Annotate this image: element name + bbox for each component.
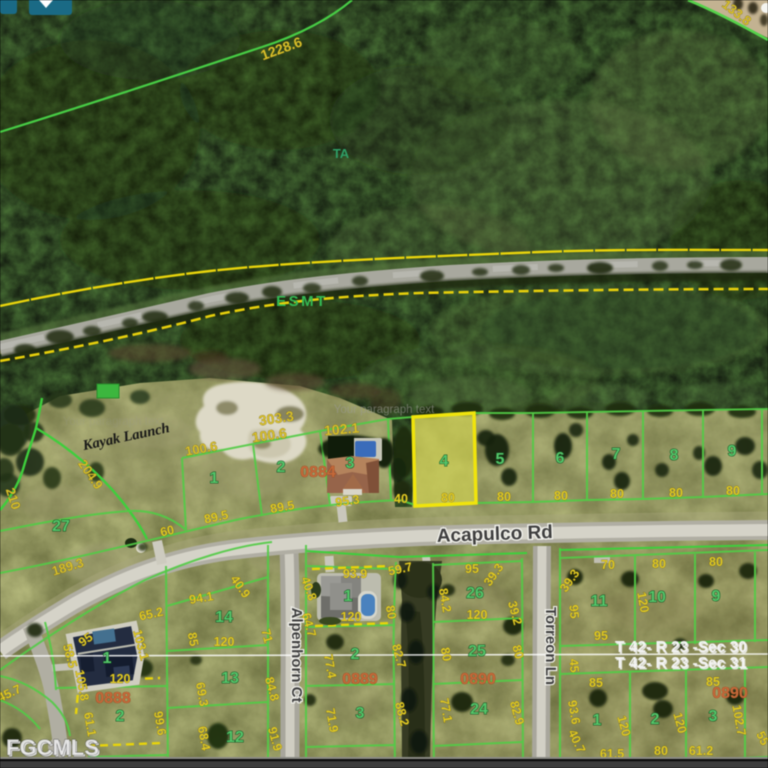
svg-text:10: 10	[648, 589, 666, 606]
svg-text:93.9: 93.9	[343, 567, 367, 581]
svg-text:8: 8	[670, 447, 679, 464]
svg-text:5: 5	[496, 451, 505, 468]
svg-text:9: 9	[712, 588, 721, 605]
svg-text:2: 2	[651, 711, 660, 728]
svg-text:102.1: 102.1	[323, 420, 360, 439]
svg-text:14: 14	[215, 609, 233, 626]
svg-text:80: 80	[441, 491, 455, 505]
svg-text:80: 80	[438, 646, 454, 662]
svg-text:1: 1	[344, 588, 353, 605]
svg-text:1: 1	[593, 712, 602, 729]
svg-text:120: 120	[214, 635, 235, 649]
svg-text:85: 85	[185, 631, 201, 647]
svg-text:3: 3	[709, 708, 718, 725]
svg-text:0890: 0890	[460, 671, 496, 688]
svg-text:120: 120	[467, 608, 488, 622]
svg-text:40: 40	[394, 492, 408, 506]
svg-text:Torreon Ln: Torreon Ln	[542, 607, 559, 685]
svg-text:25: 25	[468, 643, 486, 660]
svg-text:T 42- R 23 -Sec 30: T 42- R 23 -Sec 30	[615, 639, 747, 656]
svg-text:Your paragraph text: Your paragraph text	[63, 416, 164, 428]
svg-text:80: 80	[497, 490, 511, 504]
svg-text:120: 120	[110, 672, 131, 686]
svg-text:80: 80	[669, 486, 683, 500]
svg-text:Acapulco Rd: Acapulco Rd	[436, 522, 553, 547]
svg-text:Alpenhorn Ct: Alpenhorn Ct	[288, 608, 305, 703]
svg-text:0884: 0884	[300, 464, 336, 481]
svg-text:27: 27	[52, 518, 70, 535]
svg-text:3: 3	[356, 705, 365, 722]
svg-text:6: 6	[556, 450, 565, 467]
svg-text:Your paragraph text: Your paragraph text	[334, 404, 435, 416]
svg-text:9: 9	[728, 443, 737, 460]
svg-text:95: 95	[594, 629, 608, 643]
svg-text:80: 80	[726, 484, 740, 498]
svg-text:2: 2	[116, 708, 125, 725]
svg-text:24: 24	[470, 701, 488, 718]
svg-text:95: 95	[465, 562, 479, 576]
svg-text:FGCMLS: FGCMLS	[6, 735, 99, 760]
svg-text:70: 70	[601, 558, 615, 572]
svg-text:ESMT: ESMT	[276, 293, 328, 310]
svg-text:1: 1	[103, 650, 112, 667]
svg-text:7: 7	[612, 446, 621, 463]
svg-text:85: 85	[589, 676, 603, 690]
svg-text:61.2: 61.2	[689, 744, 713, 758]
svg-text:60: 60	[159, 523, 176, 540]
svg-text:80: 80	[709, 555, 723, 569]
svg-text:0888: 0888	[95, 690, 131, 707]
svg-text:2: 2	[351, 646, 360, 663]
svg-text:0890: 0890	[712, 685, 748, 702]
svg-text:T 42- R 23 -Sec 31: T 42- R 23 -Sec 31	[615, 655, 747, 672]
svg-text:11: 11	[591, 593, 608, 610]
svg-text:TA: TA	[333, 146, 350, 161]
svg-text:1: 1	[210, 470, 219, 487]
svg-text:80: 80	[383, 604, 399, 620]
svg-text:13: 13	[221, 670, 239, 687]
svg-text:12: 12	[226, 729, 244, 746]
svg-text:2: 2	[277, 459, 286, 476]
svg-text:95: 95	[566, 604, 581, 619]
svg-text:120: 120	[341, 610, 362, 624]
svg-text:80: 80	[610, 487, 624, 501]
svg-text:3: 3	[346, 455, 355, 472]
svg-text:4: 4	[440, 453, 449, 470]
svg-text:0889: 0889	[342, 671, 378, 688]
svg-text:26: 26	[466, 585, 484, 602]
svg-text:45: 45	[566, 658, 581, 673]
svg-text:80: 80	[554, 489, 568, 503]
svg-text:80: 80	[652, 557, 666, 571]
svg-text:80: 80	[654, 744, 668, 758]
